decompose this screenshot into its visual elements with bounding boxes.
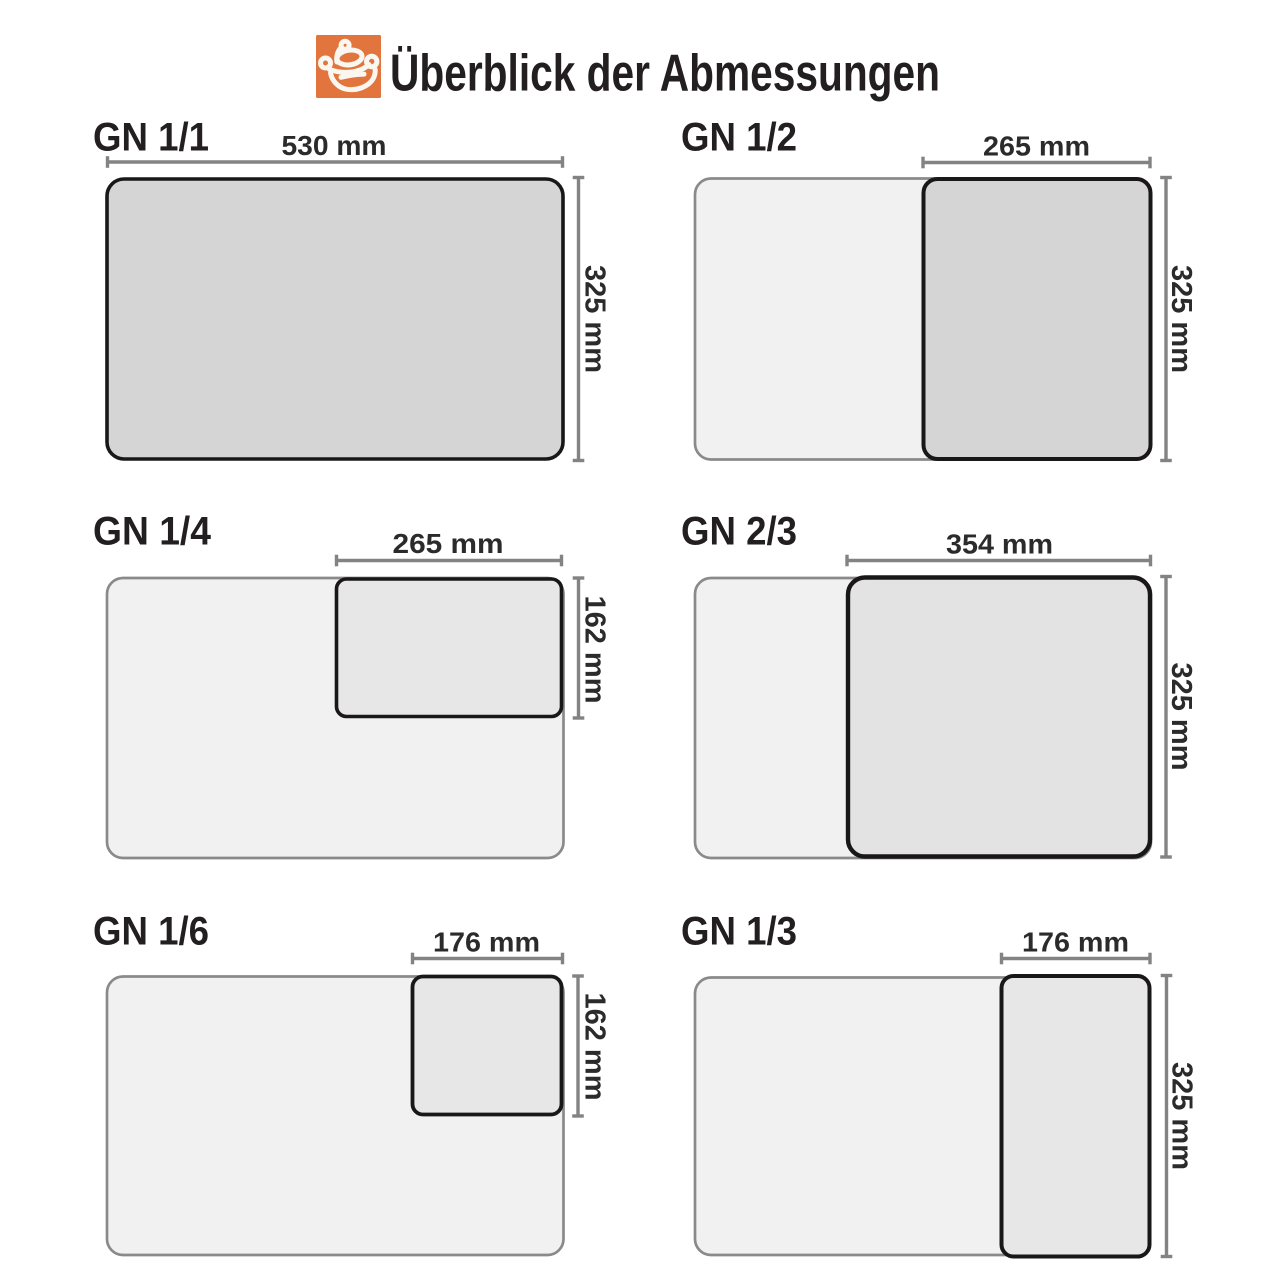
svg-text:GN 2/3: GN 2/3 [681, 510, 797, 554]
svg-text:176 mm: 176 mm [433, 927, 540, 958]
svg-text:265 mm: 265 mm [393, 528, 504, 559]
svg-text:325 mm: 325 mm [1165, 663, 1197, 771]
svg-text:325 mm: 325 mm [1165, 265, 1197, 373]
svg-text:GN 1/4: GN 1/4 [93, 510, 212, 554]
svg-text:325 mm: 325 mm [579, 265, 611, 373]
svg-text:354 mm: 354 mm [946, 529, 1053, 560]
svg-text:Überblick der Abmessungen: Überblick der Abmessungen [390, 45, 940, 103]
svg-text:162 mm: 162 mm [579, 596, 611, 704]
svg-text:176 mm: 176 mm [1022, 927, 1129, 958]
svg-text:265 mm: 265 mm [983, 131, 1090, 162]
svg-text:GN 1/6: GN 1/6 [93, 910, 209, 954]
svg-text:325 mm: 325 mm [1166, 1062, 1198, 1170]
svg-text:530 mm: 530 mm [282, 130, 387, 161]
svg-text:GN 1/1: GN 1/1 [93, 116, 209, 160]
svg-text:162 mm: 162 mm [579, 993, 611, 1101]
svg-text:GN 1/2: GN 1/2 [681, 116, 797, 160]
svg-text:GN 1/3: GN 1/3 [681, 910, 797, 954]
